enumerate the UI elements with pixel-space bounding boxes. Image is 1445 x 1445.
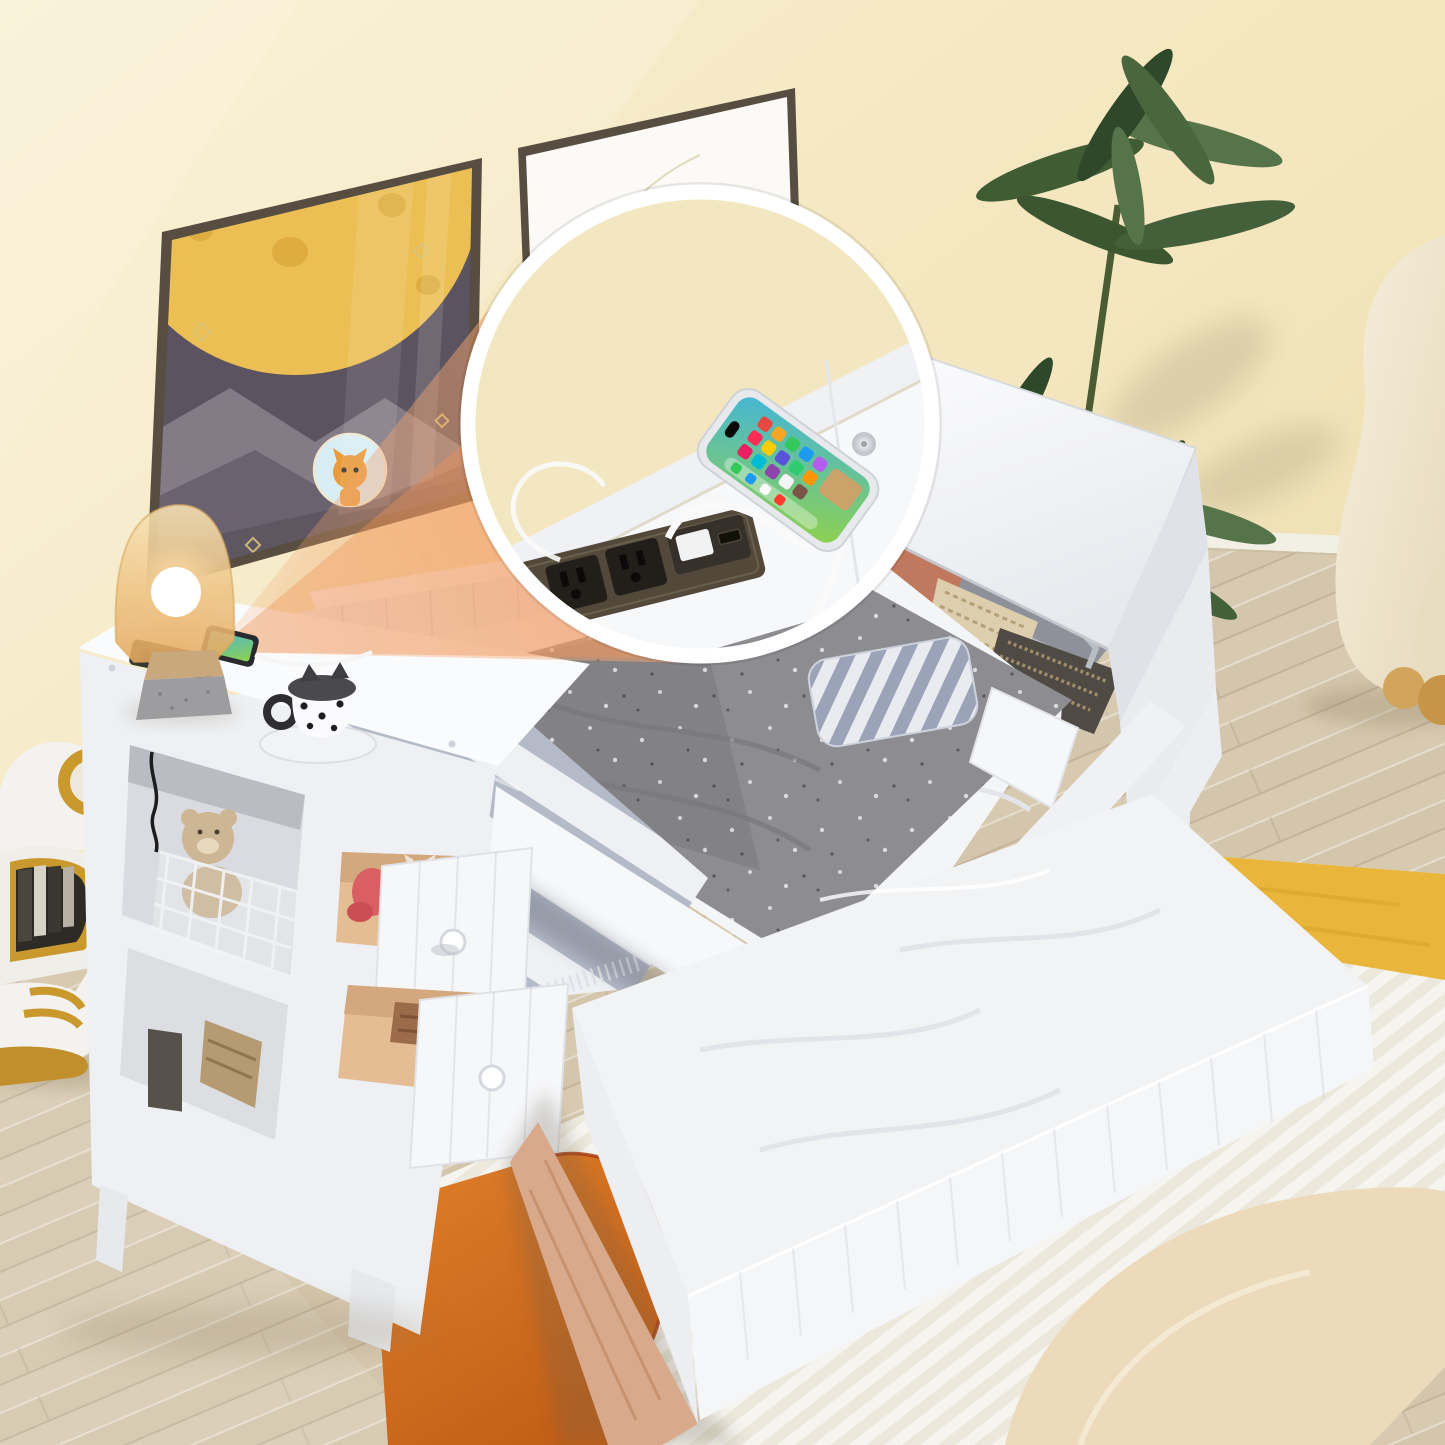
bedroom-product-photo [0, 0, 1445, 1445]
cubby2-books [148, 1029, 182, 1112]
tower-floor-shadow [60, 1304, 440, 1356]
lamp-base-wood [144, 650, 224, 680]
lamp-bulb [151, 567, 201, 617]
scene-canvas [0, 0, 1445, 1445]
pink-toy-base [347, 902, 373, 922]
drawer1-knob-shadow [431, 944, 459, 956]
mug-lid [288, 675, 356, 701]
lamp-base-stone [136, 676, 232, 720]
drawer2-knob [480, 1066, 504, 1090]
lid-knob-center [861, 441, 867, 447]
